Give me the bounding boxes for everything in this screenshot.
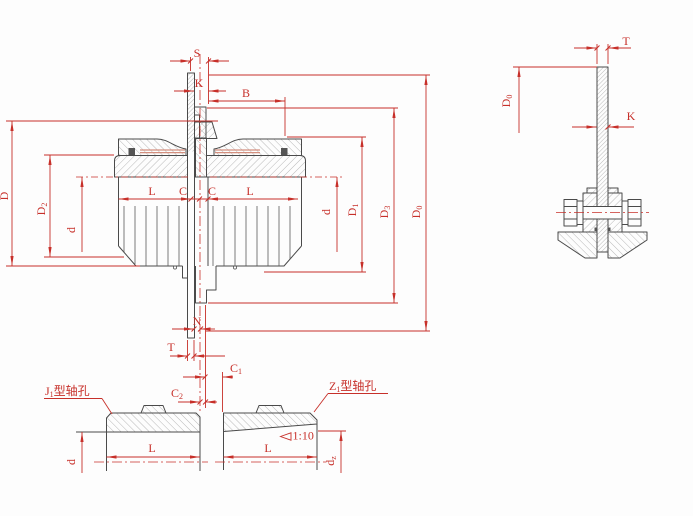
dim-label-C-right: C: [208, 184, 216, 198]
dim-label-C-left: C: [179, 184, 187, 198]
detail-baffle-plate: [597, 67, 608, 252]
dim-label-K: K: [195, 76, 204, 90]
dim-label-T-main: T: [167, 340, 175, 354]
dim-label-L-z1: L: [264, 441, 271, 455]
coupling-engineering-drawing: S K B D D2 d d: [0, 0, 693, 516]
seal-block-right: [281, 148, 288, 155]
dim-label-L-left: L: [148, 184, 155, 198]
j1-keyway-boss: [141, 406, 166, 414]
z1-keyway-boss: [256, 406, 284, 414]
dim-label-K-detail: K: [627, 109, 636, 123]
dim-label-d-j1: d: [64, 459, 78, 465]
z1-view-title: Z1型轴孔: [329, 378, 376, 394]
dim-label-S: S: [194, 46, 201, 60]
dim-label-d-right: d: [319, 209, 333, 215]
drawing-canvas: S K B D D2 d d: [0, 0, 693, 516]
dim-label-T-detail: T: [622, 34, 630, 48]
seal-block-left: [129, 148, 136, 155]
dim-label-L-right: L: [246, 184, 253, 198]
taper-ratio-label: 1:10: [293, 429, 314, 443]
dim-label-d-left: d: [64, 227, 78, 233]
dim-label-L-j1: L: [148, 441, 155, 455]
dim-label-N: N: [193, 314, 202, 328]
dim-label-B: B: [242, 86, 250, 100]
dim-label-D: D: [0, 191, 11, 200]
